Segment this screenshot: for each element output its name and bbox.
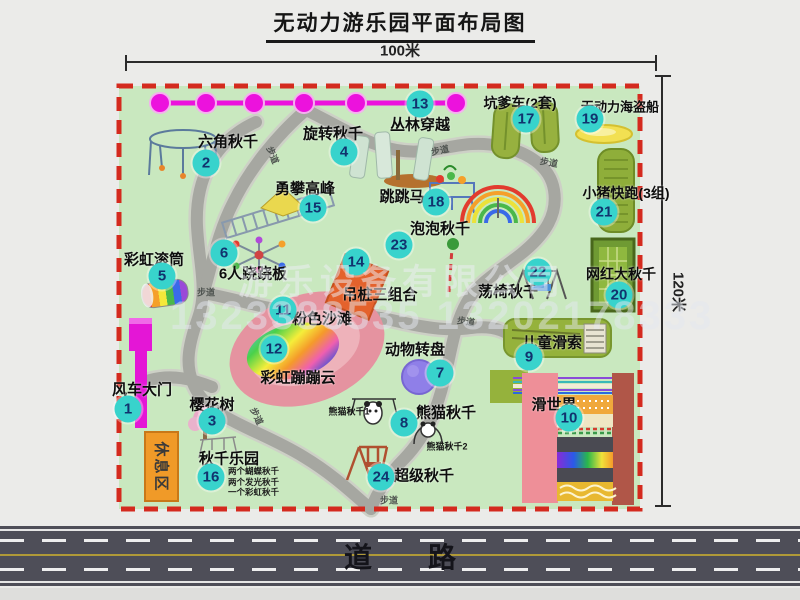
- road: 道路: [0, 526, 800, 586]
- road-shoulder: [0, 588, 800, 600]
- big-swing-icon: [592, 239, 634, 311]
- kids-zipline-icon: [504, 319, 611, 357]
- piggy-run-icon: [598, 149, 634, 232]
- road-label: 道路: [0, 526, 800, 586]
- park-map-graphics: [0, 0, 800, 600]
- park-plan-figure: 无动力游乐园平面布局图 100米 120米: [0, 0, 800, 600]
- animal-turntable-icon: [402, 360, 436, 394]
- pirate-ship-icon: [576, 125, 632, 143]
